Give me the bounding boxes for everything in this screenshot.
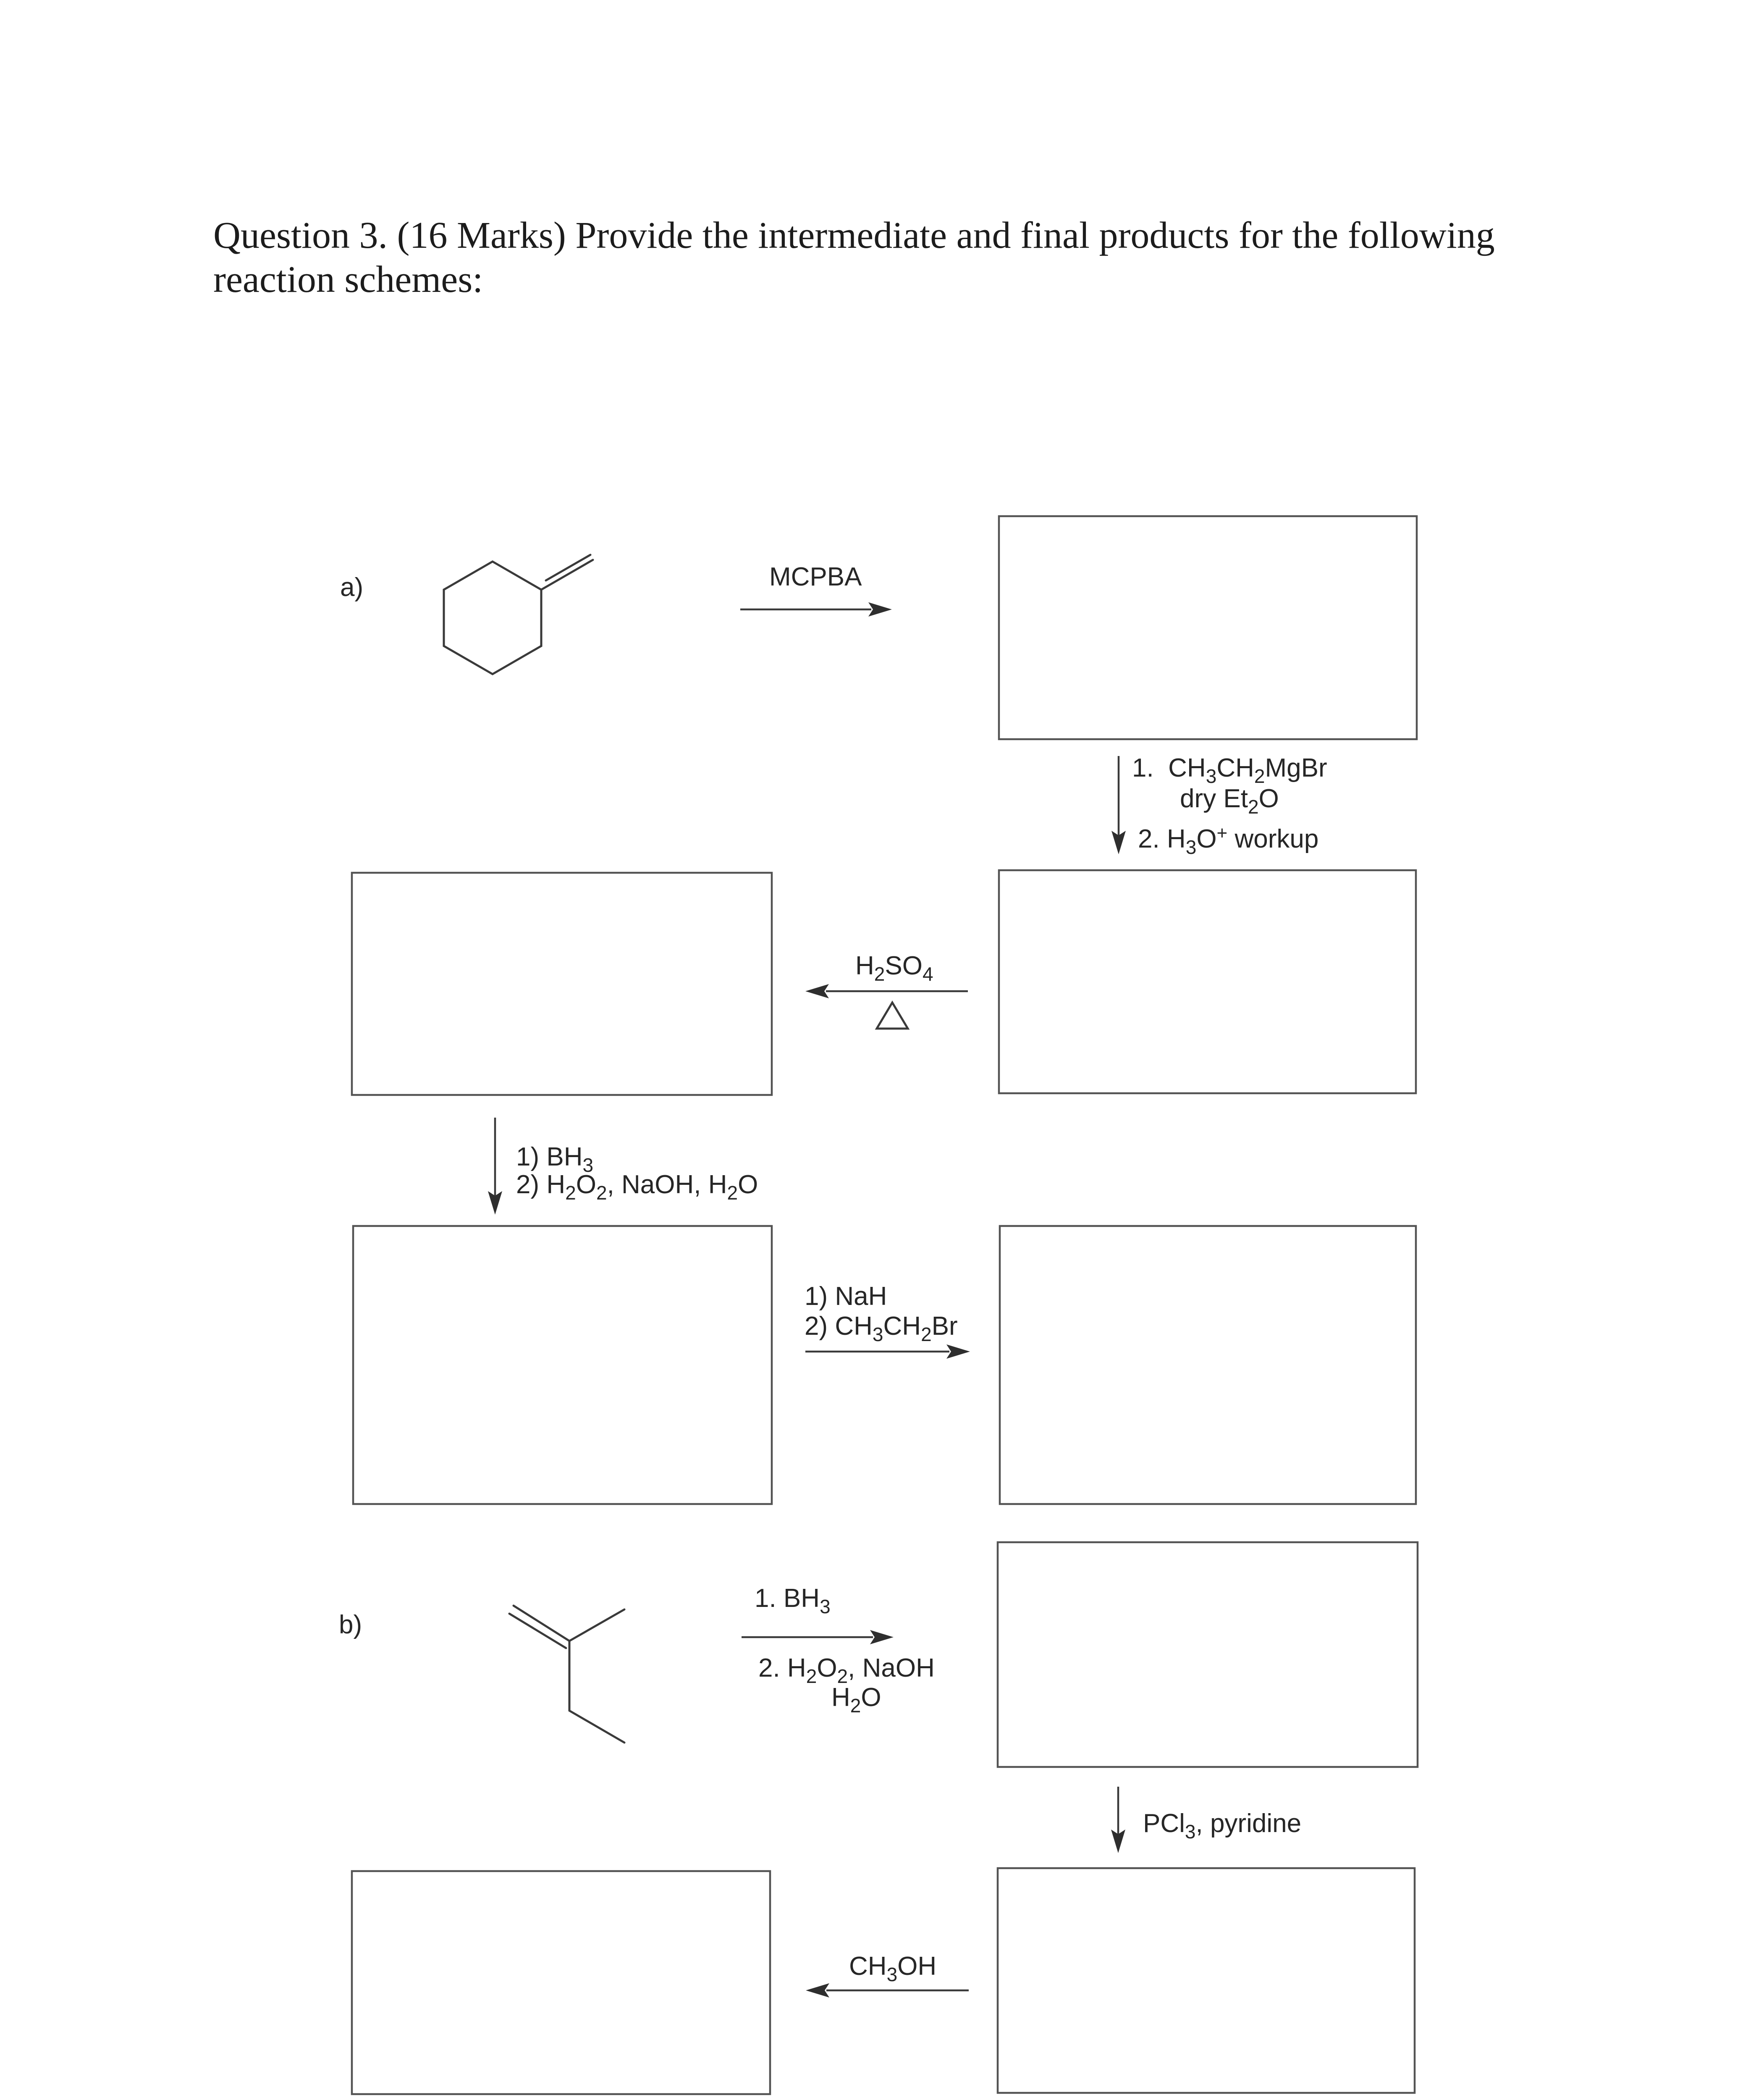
svg-text:2) H2O2, NaOH, H2O: 2) H2O2, NaOH, H2O (516, 1170, 758, 1204)
svg-text:a): a) (340, 573, 363, 602)
svg-text:dry Et2O: dry Et2O (1180, 784, 1279, 818)
svg-text:H2O: H2O (831, 1683, 881, 1717)
svg-text:MCPBA: MCPBA (769, 562, 862, 591)
svg-text:2) CH3CH2Br: 2) CH3CH2Br (805, 1312, 958, 1345)
svg-text:2. H3O+ workup: 2. H3O+ workup (1138, 823, 1318, 858)
svg-text:1) NaH: 1) NaH (805, 1282, 887, 1311)
svg-text:CH3OH: CH3OH (849, 1952, 936, 1985)
svg-text:2. H2O2, NaOH: 2. H2O2, NaOH (758, 1654, 935, 1687)
svg-text:1. BH3: 1. BH3 (755, 1584, 831, 1617)
svg-text:1. CH3CH2MgBr: 1. CH3CH2MgBr (1132, 753, 1327, 787)
svg-text:b): b) (339, 1610, 362, 1639)
svg-text:PCl3, pyridine: PCl3, pyridine (1143, 1809, 1301, 1843)
svg-text:H2SO4: H2SO4 (855, 951, 933, 985)
